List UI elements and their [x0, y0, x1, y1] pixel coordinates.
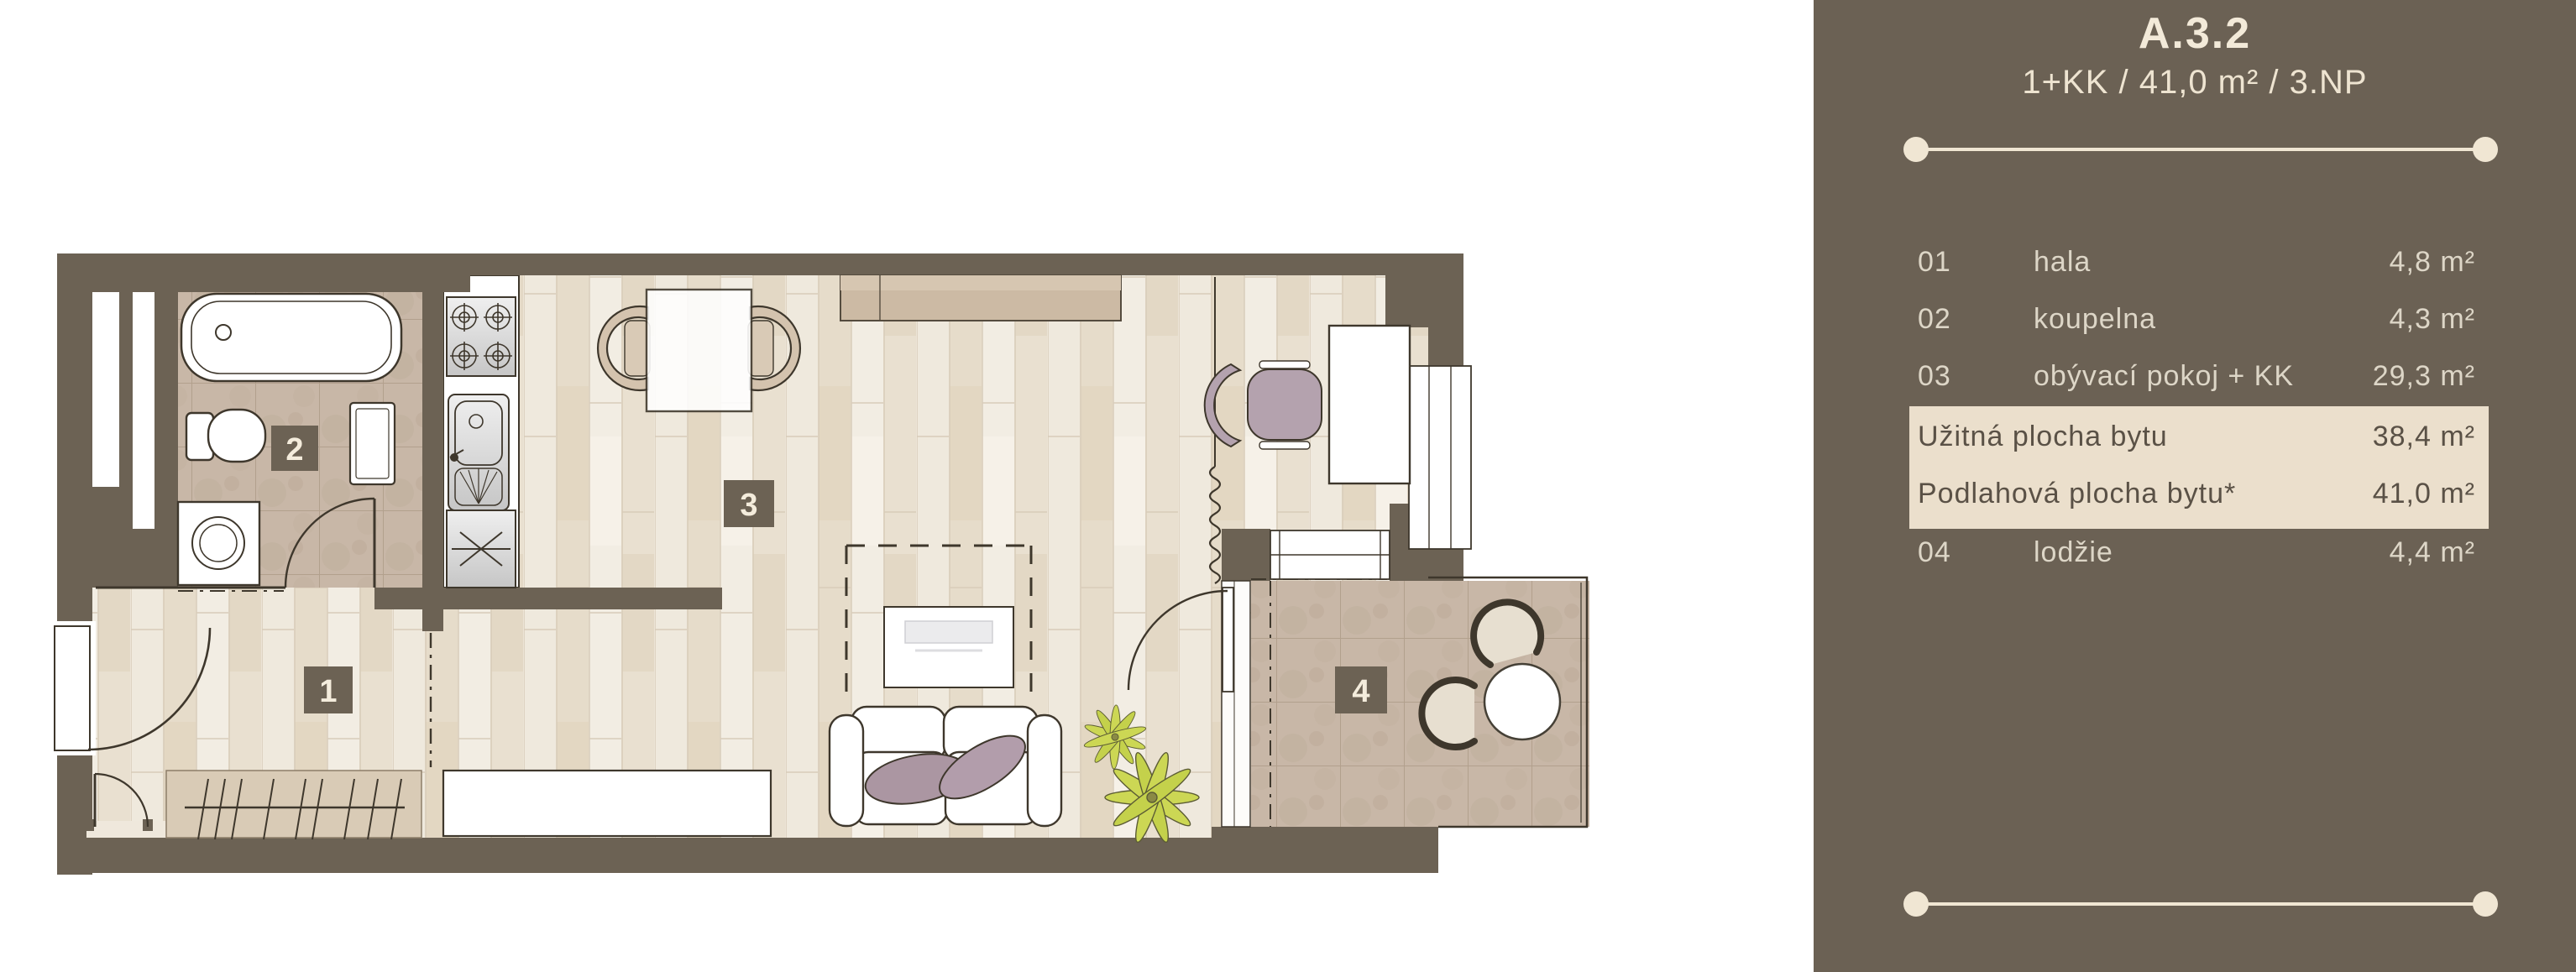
summary-row: Užitná plocha bytu 38,4 m² — [1918, 421, 2475, 452]
svg-text:4: 4 — [1352, 674, 1369, 709]
shaft — [133, 269, 154, 529]
room-name: koupelna — [2034, 303, 2390, 336]
area-table-row: 02 koupelna 4,3 m² — [1918, 304, 2475, 334]
window-loggia — [1270, 530, 1390, 579]
divider-dot — [2473, 891, 2498, 917]
room-number: 01 — [1918, 246, 2034, 279]
divider-line — [1916, 148, 2485, 151]
washing-machine — [178, 502, 259, 585]
apartment-card: 1 2 3 4 A.3.2 1+KK / 41,0 m² / 3.NP 01 h… — [0, 0, 2576, 972]
area-summary-highlight: Užitná plocha bytu 38,4 m² Podlahová plo… — [1909, 406, 2489, 529]
svg-text:3: 3 — [740, 488, 757, 523]
room-area: 4,4 m² — [2390, 536, 2475, 569]
summary-value: 41,0 m² — [2373, 478, 2475, 510]
room-name: obývací pokoj + KK — [2034, 360, 2373, 393]
tv-stand — [884, 607, 1013, 687]
room-area: 4,3 m² — [2390, 303, 2475, 336]
area-table-row: 03 obývací pokoj + KK 29,3 m² — [1918, 361, 2475, 391]
divider-line — [1916, 902, 2485, 906]
room-area: 29,3 m² — [2373, 360, 2475, 393]
desk — [1329, 326, 1410, 483]
room-number: 03 — [1918, 360, 2034, 393]
loggia-table — [1484, 664, 1560, 739]
summary-value: 38,4 m² — [2373, 421, 2475, 453]
area-table-row: 01 hala 4,8 m² — [1918, 247, 2475, 277]
apartment-id: A.3.2 — [1814, 8, 2576, 59]
built-in-closet — [443, 771, 771, 836]
room-area: 4,8 m² — [2390, 246, 2475, 279]
toilet — [186, 410, 265, 462]
summary-row: Podlahová plocha bytu* 41,0 m² — [1918, 478, 2475, 509]
room-number: 04 — [1918, 536, 2034, 569]
room-name: hala — [2034, 246, 2390, 279]
summary-label: Užitná plocha bytu — [1918, 421, 2373, 453]
window-right-wall — [1409, 366, 1471, 549]
dining-table — [647, 290, 751, 411]
stove — [447, 297, 516, 376]
svg-text:1: 1 — [319, 674, 337, 709]
loggia-chair — [1422, 680, 1474, 747]
svg-text:2: 2 — [285, 432, 303, 468]
bathroom-cabinet — [350, 403, 395, 484]
room-name: lodžie — [2034, 536, 2390, 569]
room-number: 02 — [1918, 303, 2034, 336]
info-panel: A.3.2 1+KK / 41,0 m² / 3.NP 01 hala 4,8 … — [1814, 0, 2576, 972]
summary-label: Podlahová plocha bytu* — [1918, 478, 2373, 510]
apartment-summary: 1+KK / 41,0 m² / 3.NP — [1814, 64, 2576, 102]
floor-plan: 1 2 3 4 — [0, 0, 1814, 972]
bathtub — [181, 294, 401, 381]
divider-dot — [2473, 137, 2498, 162]
divider — [1903, 137, 2498, 162]
hall-wardrobe — [166, 771, 421, 839]
sideboard — [840, 275, 1121, 321]
kitchen-sink — [448, 395, 509, 510]
dishwasher — [447, 510, 516, 588]
area-table-row: 04 lodžie 4,4 m² — [1918, 537, 2475, 567]
divider — [1903, 891, 2498, 917]
